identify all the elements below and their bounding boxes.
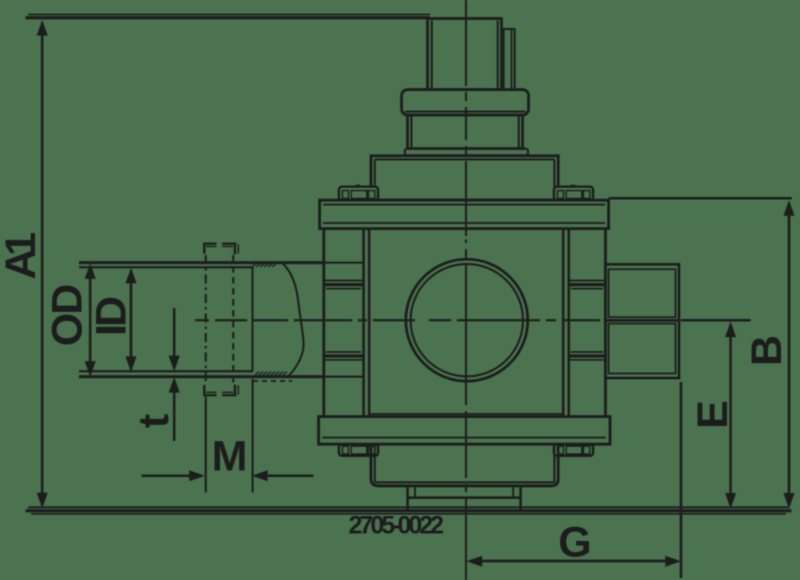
svg-text:G: G [558,519,591,567]
svg-text:B: B [743,335,791,366]
svg-text:E: E [689,400,737,429]
svg-text:t: t [130,414,178,428]
svg-text:M: M [212,433,248,481]
svg-text:A1: A1 [0,233,45,280]
svg-text:OD: OD [44,285,92,346]
svg-text:2705-0022: 2705-0022 [349,512,444,540]
svg-text:ID: ID [88,297,136,336]
